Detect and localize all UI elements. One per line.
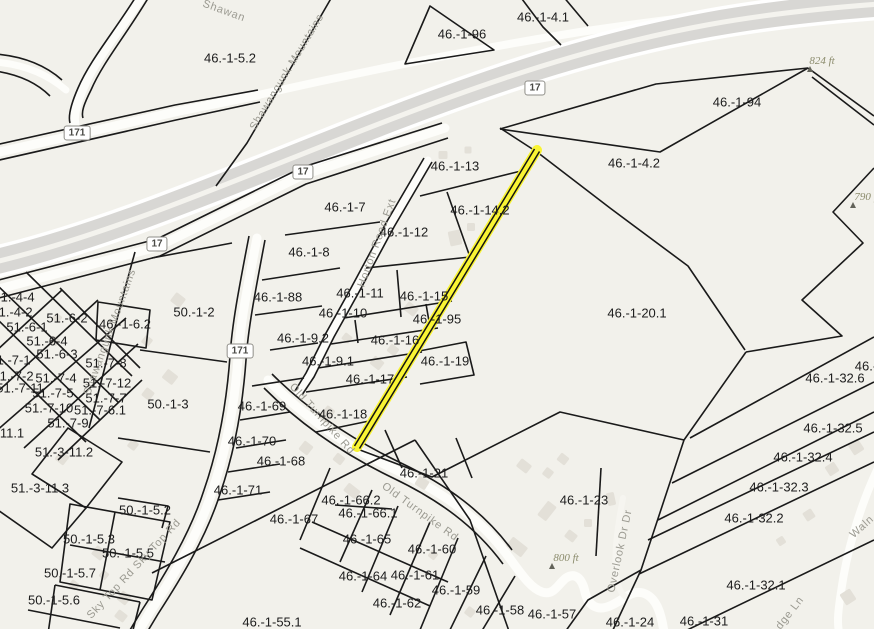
parcel-label[interactable]: 50.-1-5.3 <box>63 532 115 547</box>
parcel-label[interactable]: 46.-1-24 <box>606 615 654 629</box>
route-shield: 171 <box>227 344 254 359</box>
parcel-label[interactable]: 51.-7-10 <box>25 401 73 416</box>
building-footprint <box>802 508 816 522</box>
parcel-label[interactable]: 46.-1-8 <box>288 245 329 260</box>
building-footprint <box>516 458 532 474</box>
parcel-label[interactable]: 46.-1-4.1 <box>517 10 569 25</box>
parcel-label[interactable]: 46.-1-61 <box>391 568 439 583</box>
parcel-label[interactable]: 46.-1-60 <box>408 542 456 557</box>
parcel-label[interactable]: 51.-3-11.3 <box>11 481 69 496</box>
parcel-label[interactable]: 11.1 <box>0 426 24 441</box>
parcel-label[interactable]: 46.-1-68 <box>257 454 305 469</box>
route-shield: 17 <box>146 237 167 252</box>
elevation-label: 824 ft <box>809 55 834 67</box>
parcel-label[interactable]: 51.-7-9 <box>47 416 88 431</box>
parcel-label[interactable]: 46.-1-32.2 <box>724 511 783 526</box>
parcel-label[interactable]: 51.-7-12 <box>83 376 131 391</box>
parcel-label[interactable]: 51.-7-1 <box>0 353 31 368</box>
route-shield: 171 <box>64 126 91 141</box>
parcel-label[interactable]: 46.-1-32.1 <box>726 578 785 593</box>
parcel-label[interactable]: 46.-1-32.3 <box>749 480 808 495</box>
building-footprint <box>564 529 578 543</box>
elevation-triangle-icon <box>807 66 813 72</box>
parcel-label[interactable]: 46.- <box>855 359 874 374</box>
parcel-label[interactable]: 46.-1-6.2 <box>99 317 151 332</box>
parcel-label[interactable]: 46.-1-32.4 <box>773 450 832 465</box>
parcel-label[interactable]: 46.-1-9.1 <box>302 354 354 369</box>
route-shield: 17 <box>524 81 545 96</box>
parcel-label[interactable]: 46.-1-31 <box>680 614 728 629</box>
parcel-label[interactable]: 46.-1-88 <box>254 290 302 305</box>
parcel-label[interactable]: 46.-1-69 <box>238 399 286 414</box>
parcel-label[interactable]: 46.-1-18 <box>319 407 367 422</box>
parcel-label[interactable]: 50.-1-2 <box>173 305 214 320</box>
parcel-label[interactable]: 46.-1-59 <box>432 583 480 598</box>
parcel-label[interactable]: 51.-7-8 <box>85 356 126 371</box>
parcel-label[interactable]: 46.-1-15 <box>400 289 448 304</box>
parcel-label[interactable]: 46.-1-11 <box>336 286 383 301</box>
building-footprint <box>448 229 463 246</box>
building-footprint <box>584 519 592 527</box>
parcel-label[interactable]: 46.-1-67 <box>270 512 318 527</box>
parcel-label[interactable]: 46.-1-19 <box>421 354 469 369</box>
parcel-label[interactable]: 51.-6-2 <box>46 311 87 326</box>
parcel-label[interactable]: 46.-1-14.2 <box>450 203 509 218</box>
building-footprint <box>556 452 569 465</box>
parcel-label[interactable]: 46.-1-4.2 <box>608 156 660 171</box>
parcel-label[interactable]: 50.-1-5.2 <box>119 503 171 518</box>
parcel-label[interactable]: 50.-1-3 <box>147 397 188 412</box>
parcel-label[interactable]: 50.-1-5.7 <box>44 566 96 581</box>
building-footprint <box>114 609 128 623</box>
building-footprint <box>332 452 345 465</box>
parcel-label[interactable]: 46.-1-5.2 <box>204 51 256 66</box>
building-footprint <box>775 535 786 546</box>
elevation-triangle-icon <box>549 563 555 569</box>
parcel-label[interactable]: 50.-1-5.5 <box>102 546 154 561</box>
building-footprint <box>161 369 178 386</box>
parcel-label[interactable]: 46.-1-94 <box>713 95 761 110</box>
parcel-label[interactable]: 46.-1-7 <box>324 200 365 215</box>
parcel-label[interactable]: 46.-1-55.1 <box>242 615 301 629</box>
parcel-label[interactable]: 46.-1-71 <box>214 483 262 498</box>
parcel-label[interactable]: 46.-1-65 <box>343 532 391 547</box>
parcel-label[interactable]: 46.-1-12 <box>380 225 428 240</box>
parcel-label[interactable]: 51.-6-1 <box>6 320 47 335</box>
parcel-map[interactable]: 46.-1-5.246.-1-9646.-1-4.146.-1-9446.-1-… <box>0 0 874 629</box>
parcel-label[interactable]: 46.-1-58 <box>476 603 524 618</box>
parcel-label[interactable]: 46.-1-64 <box>339 569 387 584</box>
parcel-label[interactable]: 46.-1-32.5 <box>803 421 862 436</box>
building-footprint <box>464 606 477 619</box>
parcel-label[interactable]: 46.-1-17 <box>346 372 394 387</box>
parcel-label[interactable]: 46.-1-10 <box>319 306 367 321</box>
parcel-label[interactable]: 50.-1-5.6 <box>28 593 80 608</box>
parcel-label[interactable]: 46.-1-96 <box>438 27 486 42</box>
parcel-label[interactable]: 46.-1-70 <box>228 434 276 449</box>
parcel-label[interactable]: 51.-7-5 <box>32 386 73 401</box>
parcel-label[interactable]: 46.-1-95 <box>413 312 461 327</box>
parcel-label[interactable]: 46.-1-16 <box>371 333 419 348</box>
parcel-label[interactable]: 46.-1-20.1 <box>607 306 666 321</box>
building-footprint <box>542 467 555 480</box>
parcel-label[interactable]: 46.-1-66.1 <box>338 506 397 521</box>
parcel-label[interactable]: 51.-4-2 <box>0 305 33 320</box>
parcel-label[interactable]: 46.-1-13 <box>431 159 479 174</box>
parcel-label[interactable]: 51.-6-3 <box>36 347 77 362</box>
parcel-label[interactable]: 46.-1-23 <box>560 493 608 508</box>
parcel-label[interactable]: 46.-1-21 <box>400 466 448 481</box>
building-footprint <box>465 147 472 154</box>
route-shield: 17 <box>292 165 313 180</box>
parcel-label[interactable]: 51.-4-4 <box>0 290 35 305</box>
building-footprint <box>467 223 475 231</box>
building-footprint <box>537 501 557 522</box>
parcel-label[interactable]: 46.-1-9.2 <box>277 331 329 346</box>
elevation-triangle-icon <box>850 202 856 208</box>
parcel-label[interactable]: 51.-3-11.2 <box>35 445 93 460</box>
parcel-label[interactable]: 46.-1-57 <box>528 607 576 622</box>
parcel-label[interactable]: 46.-1-62 <box>373 596 421 611</box>
elevation-label: 790 ft <box>854 191 874 203</box>
elevation-label: 800 ft <box>553 552 578 564</box>
